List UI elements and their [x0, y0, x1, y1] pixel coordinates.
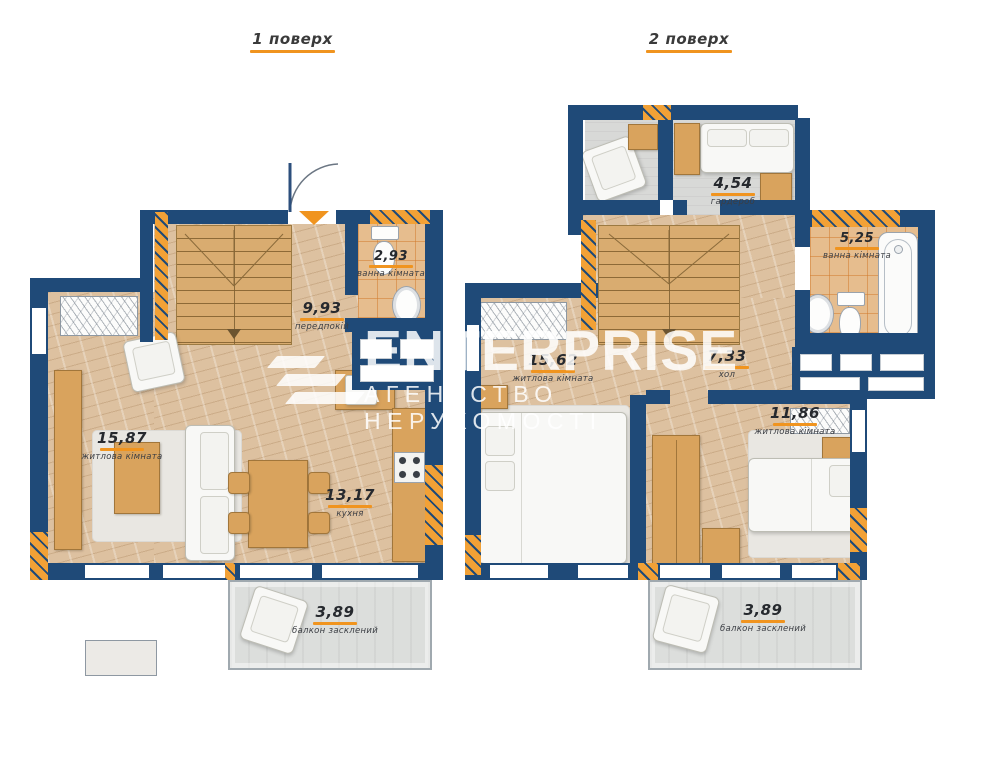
chair	[228, 472, 250, 494]
armchair-cushion	[132, 340, 176, 381]
cabinet	[674, 123, 700, 175]
floor1-title-text: 1 поверх	[250, 30, 335, 48]
armchair	[122, 331, 186, 393]
kitchen-counter	[392, 408, 427, 562]
wall-hatch-segment	[581, 220, 596, 330]
room-label-balcony: 3,89 балкон засклений	[280, 604, 390, 636]
stove	[394, 452, 425, 483]
room-name: житлова кімната	[498, 375, 608, 384]
window	[722, 563, 780, 580]
wall-hatch-segment	[370, 210, 430, 224]
chair	[228, 512, 250, 534]
room-name: хол	[672, 371, 782, 380]
room-label-hallway: 9,93 передпокій	[267, 300, 377, 332]
sofa	[700, 123, 794, 173]
double-bed	[478, 412, 627, 564]
window	[465, 325, 481, 371]
room-label-balcony: 3,89 балкон засклений	[708, 602, 818, 634]
wall-hatch-segment	[638, 563, 658, 580]
room-name: житлова кімната	[740, 428, 850, 437]
label-underline	[328, 505, 372, 508]
window	[792, 563, 836, 580]
wall-hatch-segment	[850, 508, 867, 552]
room-area: 9,93	[267, 300, 377, 317]
room-label-wardrobe: 4,54 гардероб	[678, 175, 788, 207]
room-label-bathroom: 5,25 ванна кімната	[802, 232, 912, 262]
sofa-cushion	[749, 129, 789, 147]
wall-segment	[795, 333, 935, 347]
room-label-bathroom: 2,93 ванна кімната	[346, 250, 436, 280]
floor1-title-underline	[250, 50, 335, 53]
room-area: 11,86	[740, 405, 850, 422]
toilet-tank	[837, 292, 865, 306]
room-area: 7,33	[672, 348, 782, 365]
room-name: балкон засклений	[280, 627, 390, 636]
wall-segment	[140, 210, 153, 342]
window-pane	[400, 339, 434, 359]
window	[850, 410, 867, 452]
label-underline	[773, 423, 817, 426]
room-name: ванна кімната	[802, 252, 912, 261]
window-pane	[840, 354, 872, 371]
room-name: балкон засклений	[708, 625, 818, 634]
label-underline	[100, 448, 144, 451]
room-area: 2,93	[346, 250, 436, 264]
floor-mat	[85, 640, 157, 676]
room-area: 15,62	[498, 352, 608, 369]
room-name: гардероб	[678, 198, 788, 207]
armchair-cushion	[662, 594, 711, 643]
single-bed	[748, 458, 864, 532]
wardrobe-closet	[475, 302, 567, 340]
room-area: 4,54	[678, 175, 788, 192]
label-underline	[705, 366, 749, 369]
wall-segment	[465, 283, 598, 298]
wall-segment	[568, 105, 798, 120]
nightstand	[478, 385, 508, 409]
floor1-plan: 15,87 житлова кімната 9,93 передпокій 2,…	[30, 140, 450, 680]
sofa	[185, 425, 235, 561]
pillow	[485, 426, 515, 456]
label-underline	[711, 193, 755, 196]
window	[163, 563, 225, 580]
window	[660, 563, 710, 580]
floor2-title: 2 поверх	[646, 30, 732, 53]
wall-hatch-segment	[838, 563, 860, 580]
window	[85, 563, 149, 580]
stairs	[598, 225, 740, 345]
wall-hatch-segment	[812, 210, 900, 227]
wall-segment	[568, 105, 583, 215]
sofa-cushion	[707, 129, 747, 147]
room-area: 3,89	[280, 604, 390, 621]
room-label-bedroom1: 15,62 житлова кімната	[498, 352, 608, 384]
floor-plan-sheet: { "floor1": { "title": "1 поверх", "room…	[0, 0, 1000, 777]
window	[240, 563, 312, 580]
room-label-bedroom2: 11,86 житлова кімната	[740, 405, 850, 437]
wall-segment	[646, 390, 670, 404]
wall-segment	[708, 390, 850, 404]
room-name: передпокій	[267, 323, 377, 332]
pillow	[485, 461, 515, 491]
wall-hatch-segment	[465, 535, 481, 575]
wall-hatch-segment	[643, 105, 671, 120]
floor1-title: 1 поверх	[250, 30, 335, 53]
window	[30, 308, 48, 354]
blanket-fold	[521, 413, 522, 563]
room-label-hall: 7,33 хол	[672, 348, 782, 380]
label-underline	[369, 265, 413, 268]
cabinet-door-line	[676, 440, 677, 564]
window	[490, 563, 548, 580]
label-underline	[835, 247, 879, 250]
room-name: кухня	[295, 510, 405, 519]
window-pane	[880, 354, 924, 371]
kitchen-window-unit	[352, 332, 443, 390]
window	[578, 563, 628, 580]
room-area: 5,25	[802, 232, 912, 246]
entrance-marker-icon	[299, 211, 329, 225]
room-label-living: 15,87 житлова кімната	[67, 430, 177, 462]
wall-hatch-segment	[155, 212, 168, 340]
room-area: 3,89	[708, 602, 818, 619]
wall-segment	[658, 118, 673, 200]
room-name: житлова кімната	[67, 453, 177, 462]
window-pane	[360, 339, 392, 359]
label-underline	[300, 318, 344, 321]
room-area: 13,17	[295, 487, 405, 504]
wardrobe-cabinet	[652, 435, 700, 569]
wall-segment	[918, 210, 935, 333]
room-label-kitchen: 13,17 кухня	[295, 487, 405, 519]
window-pane	[800, 377, 860, 391]
toilet	[837, 292, 863, 336]
window-pane	[868, 377, 924, 391]
blanket-fold	[811, 459, 812, 531]
desk	[628, 124, 658, 150]
entrance-door-arc	[286, 158, 338, 214]
stairs-winder-lines	[599, 226, 739, 344]
wardrobe-closet	[60, 296, 138, 336]
toilet-tank	[371, 226, 399, 240]
room-name: ванна кімната	[346, 270, 436, 279]
wall-hatch-segment	[30, 532, 48, 580]
label-underline	[531, 370, 575, 373]
sofa-cushion	[200, 496, 229, 554]
floor2-plan: 4,54 гардероб 5,25 ванна кімната 7,33 хо…	[460, 80, 940, 680]
window-pane	[800, 354, 832, 371]
wall-hatch-segment	[425, 465, 443, 545]
wall-segment	[795, 290, 810, 333]
floor2-title-text: 2 поверх	[646, 30, 732, 48]
window-pane	[360, 365, 434, 382]
label-underline	[313, 622, 357, 625]
wall-segment	[630, 395, 646, 563]
label-underline	[741, 620, 785, 623]
floor2-title-underline	[646, 50, 732, 53]
room-area: 15,87	[67, 430, 177, 447]
sofa-cushion	[200, 432, 229, 490]
armchair-cushion	[591, 145, 637, 191]
wall-segment	[795, 118, 810, 215]
window	[322, 563, 418, 580]
